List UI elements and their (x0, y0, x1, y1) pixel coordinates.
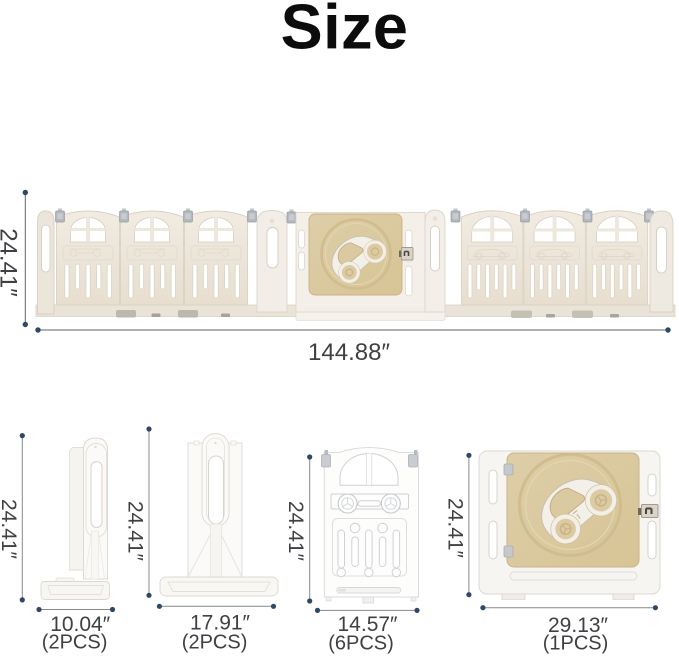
svg-text:24.41″: 24.41″ (0, 499, 20, 560)
svg-text:Size: Size (281, 0, 409, 63)
svg-text:24.41″: 24.41″ (444, 498, 467, 559)
svg-text:(1PCS): (1PCS) (543, 633, 609, 655)
svg-text:24.41″: 24.41″ (0, 228, 22, 297)
svg-text:24.41″: 24.41″ (284, 501, 307, 562)
svg-text:(2PCS): (2PCS) (42, 632, 108, 654)
svg-text:24.41″: 24.41″ (124, 501, 147, 562)
svg-text:144.88″: 144.88″ (308, 339, 390, 366)
svg-text:(2PCS): (2PCS) (182, 632, 248, 654)
svg-text:(6PCS): (6PCS) (328, 633, 394, 655)
